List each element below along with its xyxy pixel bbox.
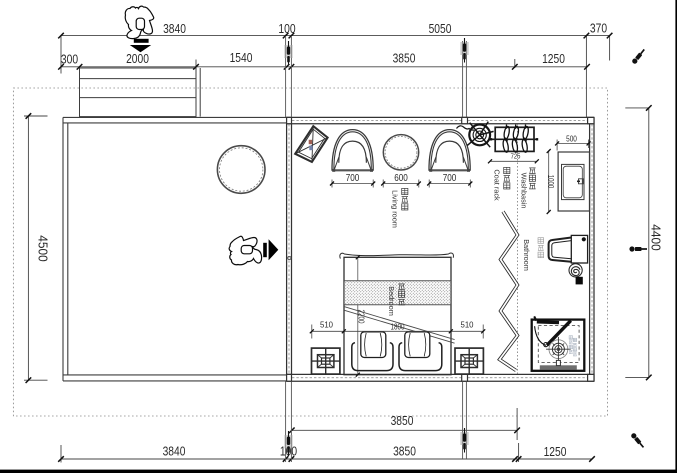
svg-text:700: 700 bbox=[443, 173, 457, 184]
svg-text:1250: 1250 bbox=[542, 51, 565, 66]
svg-text:100: 100 bbox=[278, 21, 295, 36]
svg-text:Living room: Living room bbox=[391, 190, 400, 228]
svg-text:4500: 4500 bbox=[36, 235, 51, 262]
svg-text:3840: 3840 bbox=[163, 21, 186, 36]
svg-text:2200: 2200 bbox=[357, 310, 366, 325]
svg-text:725: 725 bbox=[511, 152, 521, 161]
svg-text:Bedroom: Bedroom bbox=[387, 286, 396, 316]
svg-text:3850: 3850 bbox=[391, 413, 414, 428]
svg-text:370: 370 bbox=[590, 21, 607, 36]
svg-text:1800: 1800 bbox=[391, 323, 406, 332]
svg-text:1000: 1000 bbox=[546, 175, 555, 189]
svg-text:1540: 1540 bbox=[230, 50, 253, 65]
svg-text:500: 500 bbox=[566, 134, 577, 143]
svg-text:300: 300 bbox=[61, 52, 78, 67]
svg-text:600: 600 bbox=[394, 173, 408, 184]
svg-text:3850: 3850 bbox=[393, 51, 416, 66]
svg-text:510: 510 bbox=[320, 319, 333, 329]
svg-text:700: 700 bbox=[346, 173, 360, 184]
svg-text:Coat rack: Coat rack bbox=[493, 169, 502, 201]
svg-text:1250: 1250 bbox=[544, 444, 567, 459]
svg-text:3840: 3840 bbox=[163, 444, 186, 459]
svg-text:5050: 5050 bbox=[429, 21, 452, 36]
svg-text:3850: 3850 bbox=[393, 444, 416, 459]
svg-text:Washbasin: Washbasin bbox=[520, 173, 529, 209]
svg-text:4400: 4400 bbox=[649, 224, 664, 251]
svg-text:2000: 2000 bbox=[126, 51, 149, 66]
svg-text:Bathroom: Bathroom bbox=[522, 239, 531, 271]
svg-text:510: 510 bbox=[461, 319, 474, 329]
